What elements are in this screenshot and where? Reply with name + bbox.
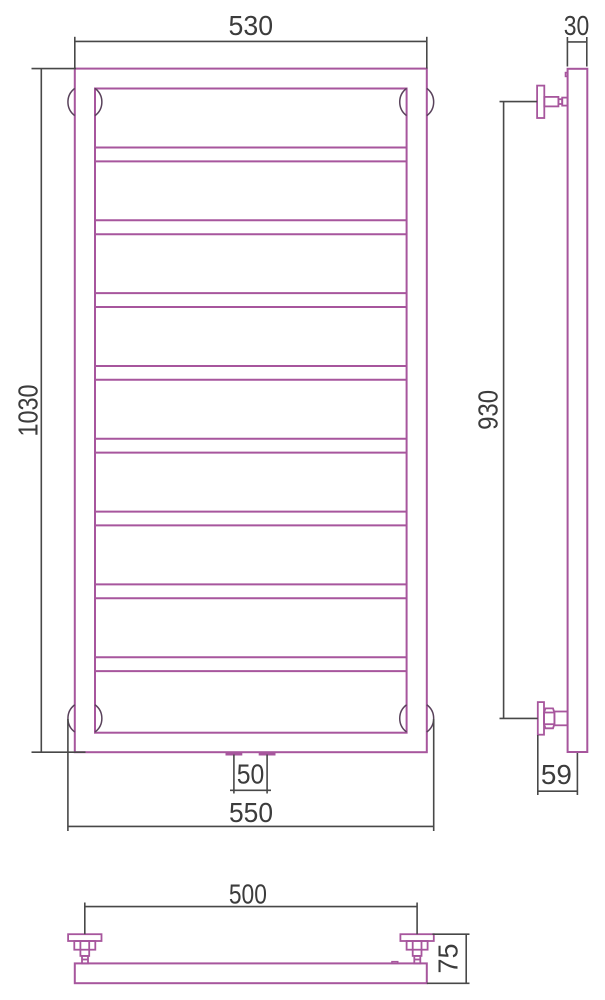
svg-text:500: 500 <box>229 879 267 910</box>
svg-text:550: 550 <box>229 797 273 828</box>
svg-text:530: 530 <box>229 10 274 41</box>
svg-text:50: 50 <box>237 759 265 790</box>
svg-text:930: 930 <box>473 390 504 430</box>
svg-text:59: 59 <box>541 759 572 790</box>
svg-text:75: 75 <box>432 944 463 974</box>
svg-text:1030: 1030 <box>12 385 43 437</box>
svg-text:30: 30 <box>564 10 590 41</box>
